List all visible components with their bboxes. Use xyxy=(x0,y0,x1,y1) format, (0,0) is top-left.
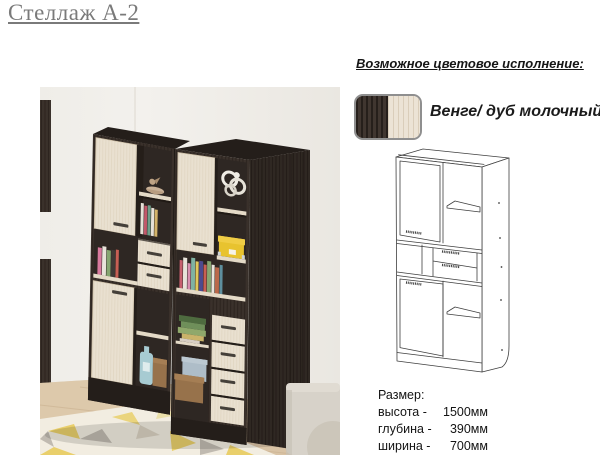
dimensions-heading: Размер: xyxy=(378,387,488,404)
drawing-outline xyxy=(396,149,509,372)
cabinet-line-drawing xyxy=(381,146,513,380)
wall-panel xyxy=(40,259,51,389)
swatch-wenge-half xyxy=(356,96,388,138)
dimension-value: 1500мм xyxy=(440,404,488,421)
open-shelf xyxy=(138,145,172,242)
door xyxy=(91,281,134,385)
dimension-label: высота - xyxy=(378,404,440,421)
swatch-milk-oak-half xyxy=(388,96,420,138)
page-title: Стеллаж А-2 xyxy=(8,0,139,26)
dimension-label: глубина - xyxy=(378,421,440,438)
shelving-unit-right xyxy=(172,149,250,445)
open-shelf xyxy=(174,294,209,422)
catalog-page: Стеллаж А-2 xyxy=(0,0,600,468)
shelving-unit-left xyxy=(88,134,175,415)
color-swatch xyxy=(354,94,422,140)
dimensions-block: Размер: высота - 1500мм глубина - 390мм … xyxy=(378,387,488,455)
open-shelf xyxy=(135,288,169,391)
door xyxy=(177,152,215,254)
wall-panel xyxy=(40,100,51,212)
dimension-value: 700мм xyxy=(440,438,488,455)
door xyxy=(94,138,137,236)
dimension-row: ширина - 700мм xyxy=(378,438,488,455)
dimension-row: глубина - 390мм xyxy=(378,421,488,438)
color-swatch-label: Венге/ дуб молочный xyxy=(430,103,600,121)
dimension-row: высота - 1500мм xyxy=(378,404,488,421)
dimension-label: ширина - xyxy=(378,438,440,455)
drawers xyxy=(137,238,170,291)
color-options-heading: Возможное цветовое исполнение: xyxy=(356,56,584,71)
room-photo xyxy=(40,87,340,455)
open-shelf xyxy=(217,158,247,261)
drawers xyxy=(211,315,245,426)
books-stack xyxy=(178,315,206,345)
sofa xyxy=(286,383,340,455)
dimension-value: 390мм xyxy=(440,421,488,438)
